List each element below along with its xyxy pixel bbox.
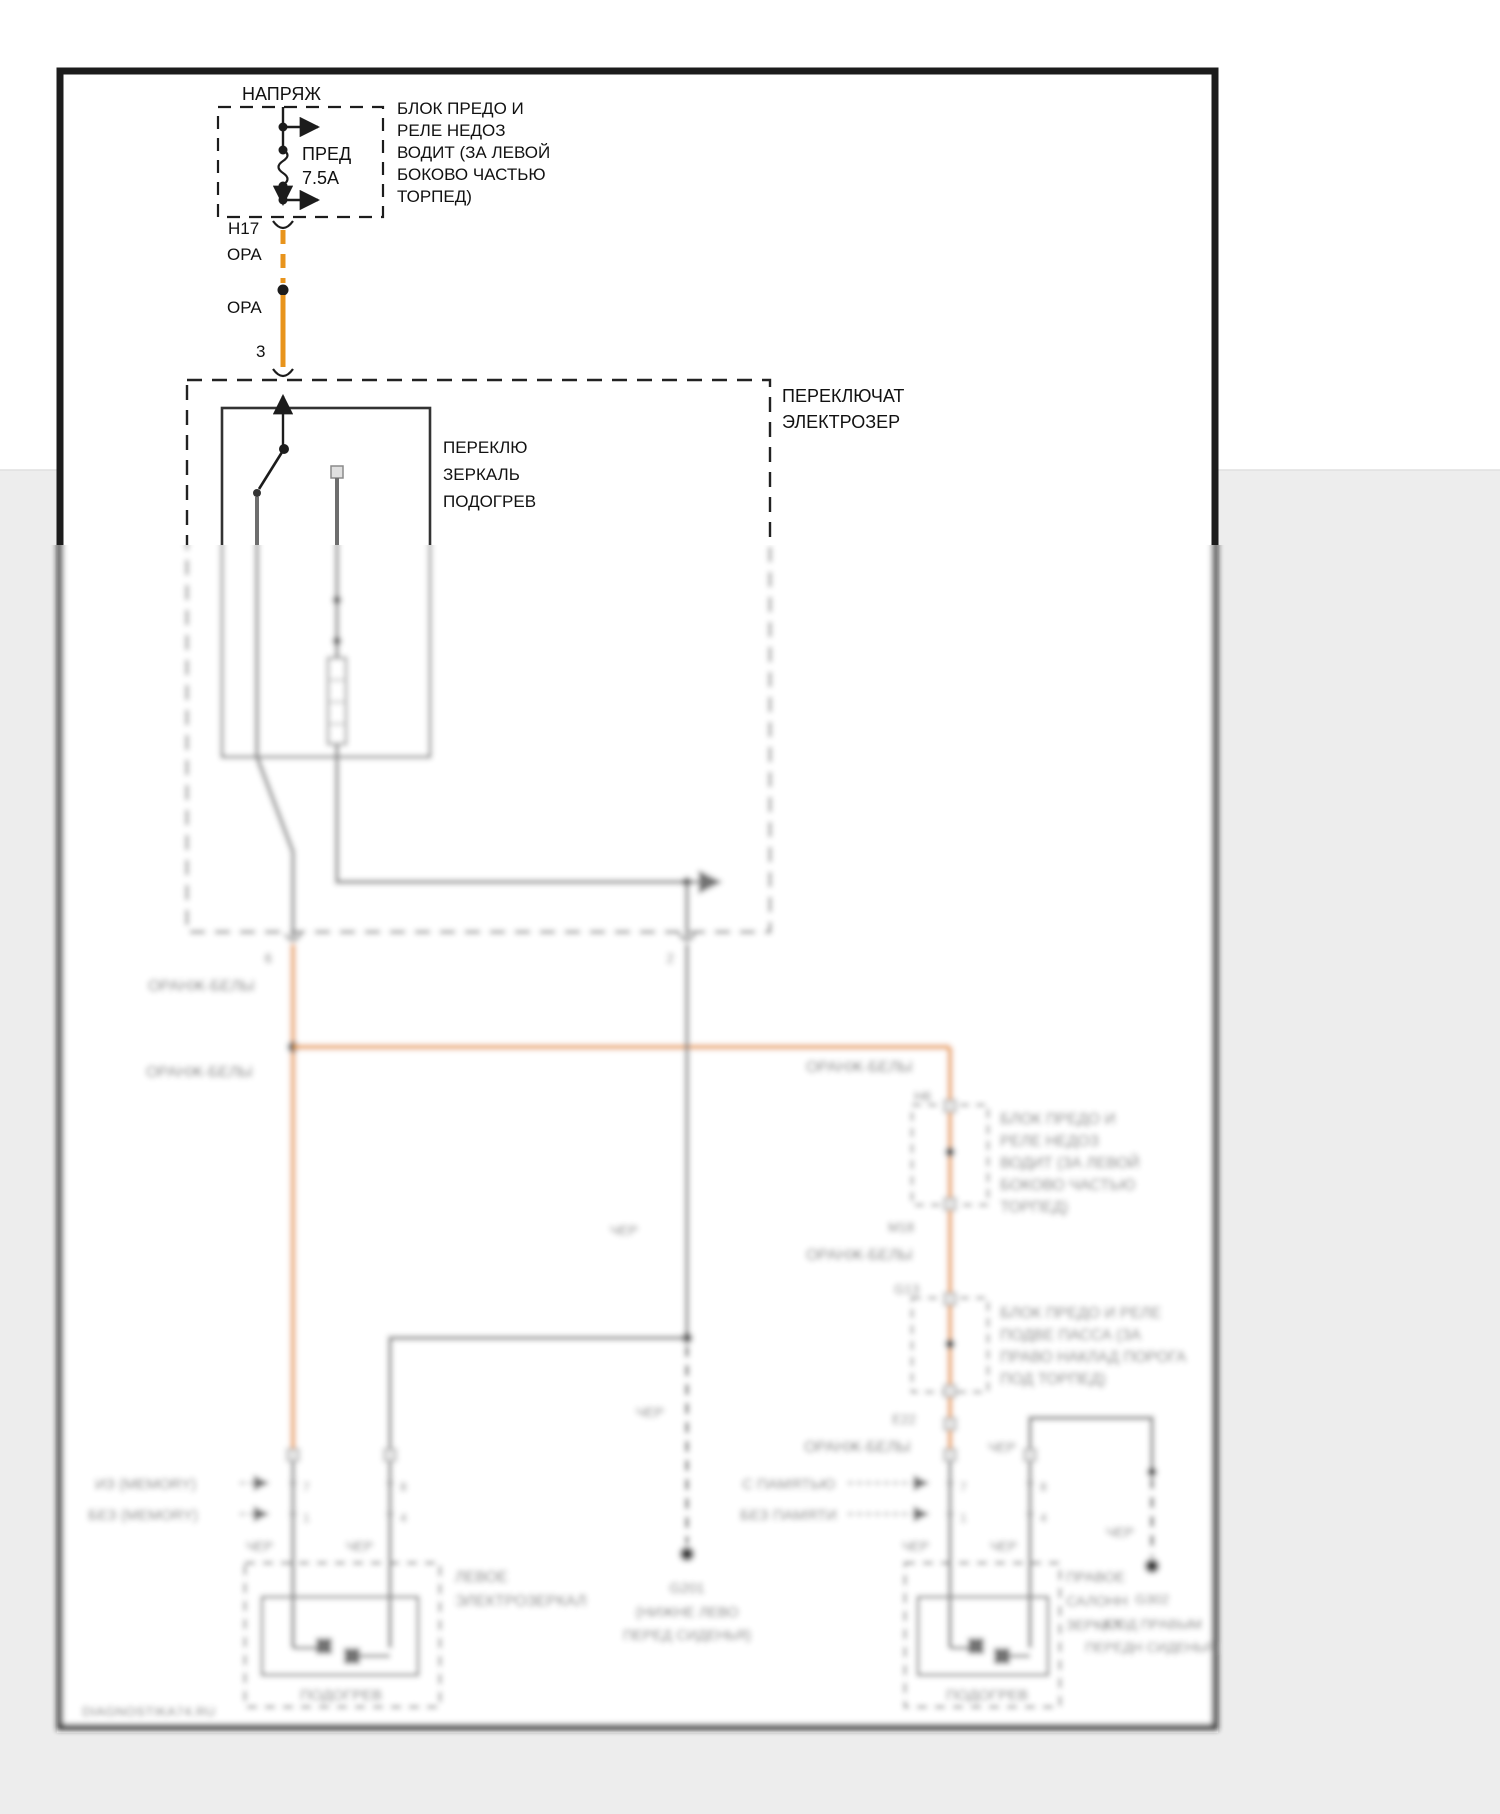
wiring-diagram: НАПРЯЖ ПРЕД 7.5А БЛОК ПРЕДО И РЕЛЕ НЕДОЗ…	[0, 0, 1500, 1814]
right-margin	[1218, 470, 1500, 1814]
left-margin	[0, 470, 57, 1814]
bottom-margin	[0, 1733, 1500, 1814]
wiring-diagram-page: НАПРЯЖ ПРЕД 7.5А БЛОК ПРЕДО И РЕЛЕ НЕДОЗ…	[0, 0, 1500, 1814]
